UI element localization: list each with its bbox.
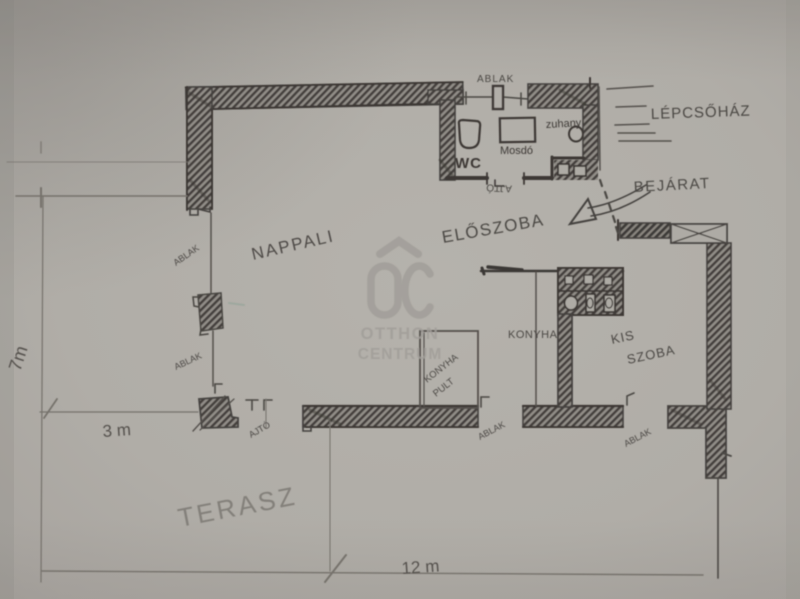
svg-text:CENTRUM: CENTRUM xyxy=(358,346,443,363)
svg-text:OTTHON: OTTHON xyxy=(361,325,440,343)
svg-text:ABLAK: ABLAK xyxy=(477,74,514,85)
svg-text:LÉPCSŐHÁZ: LÉPCSŐHÁZ xyxy=(651,103,751,123)
svg-text:12 m: 12 m xyxy=(401,556,440,578)
svg-text:WC: WC xyxy=(455,155,482,172)
svg-text:KONYHA: KONYHA xyxy=(508,329,558,341)
svg-text:3 m: 3 m xyxy=(102,420,132,441)
svg-text:zuhany: zuhany xyxy=(546,117,583,131)
svg-text:Mosdó: Mosdó xyxy=(500,145,533,157)
